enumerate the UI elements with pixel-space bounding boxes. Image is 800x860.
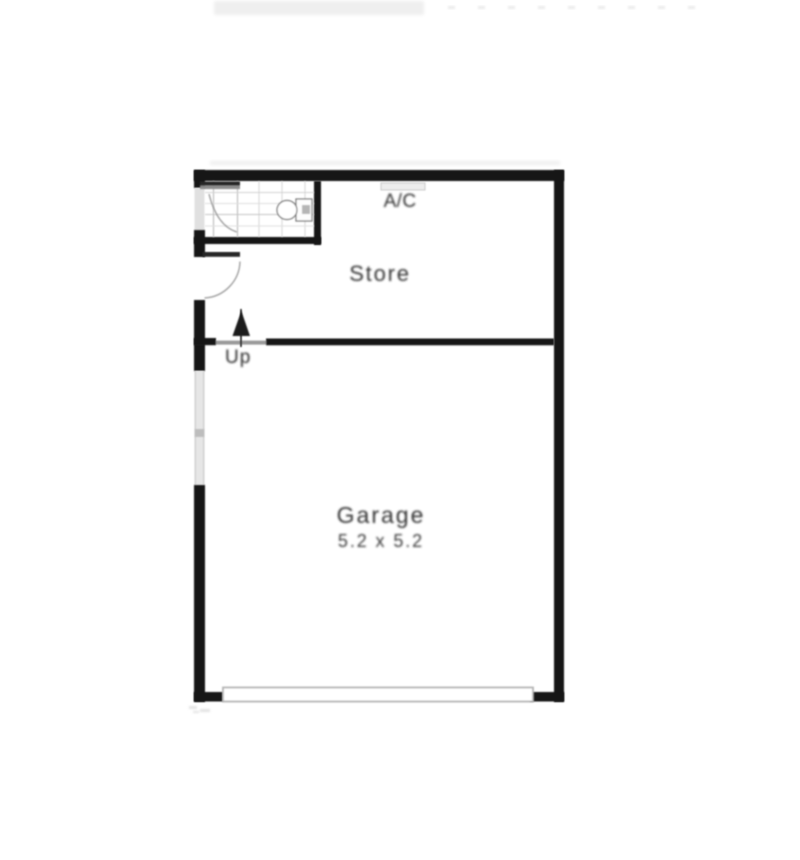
svg-text:Garage: Garage: [337, 502, 426, 528]
svg-text:Store: Store: [349, 261, 411, 286]
svg-text:5.2 x 5.2: 5.2 x 5.2: [338, 531, 424, 551]
svg-text:Up: Up: [225, 347, 251, 368]
svg-text:A/C: A/C: [384, 191, 417, 212]
